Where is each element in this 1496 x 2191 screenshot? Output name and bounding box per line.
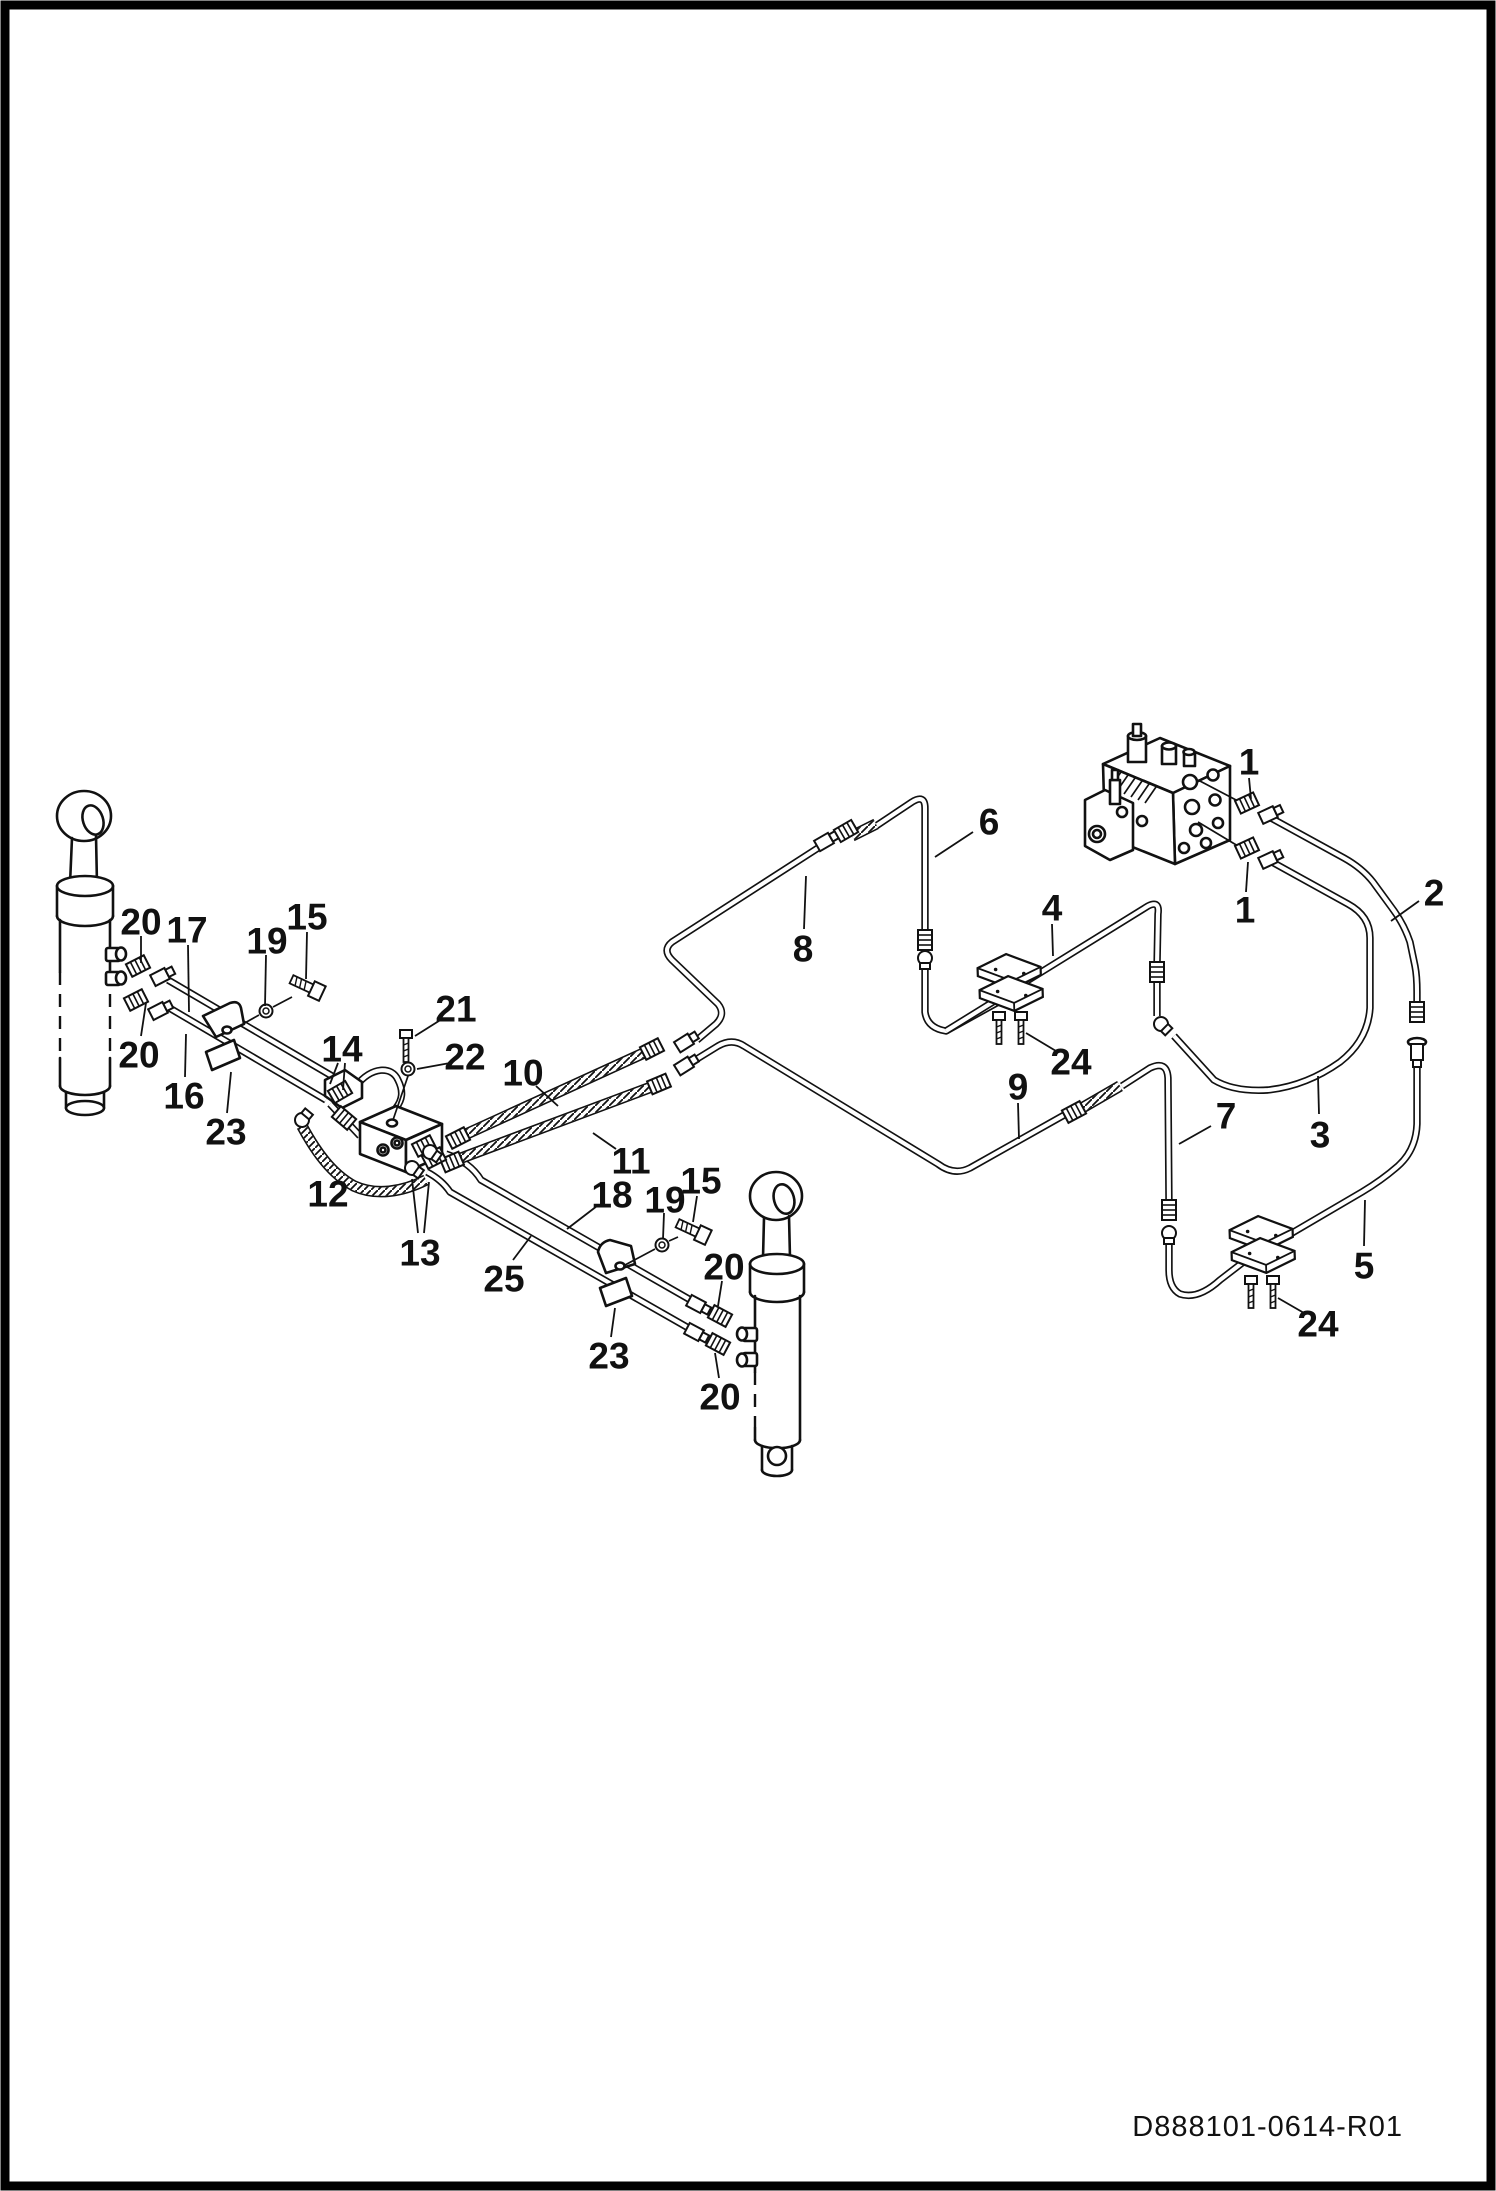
callout-leader xyxy=(1052,924,1053,956)
part-callout-19: 19 xyxy=(246,921,287,962)
callout-leader xyxy=(1318,1076,1319,1114)
part-callout-17: 17 xyxy=(166,910,207,951)
clamp-bolt-icon xyxy=(1245,1276,1257,1308)
part-callout-3: 3 xyxy=(1310,1115,1331,1156)
part-callout-4: 4 xyxy=(1042,888,1063,929)
callout-leader xyxy=(188,945,189,1012)
callout-leader xyxy=(424,1182,429,1233)
part-callout-23: 23 xyxy=(205,1112,246,1153)
part-callout-15: 15 xyxy=(680,1161,721,1202)
washer-icon xyxy=(656,1239,669,1252)
part-callout-19: 19 xyxy=(644,1180,685,1221)
callout-leader xyxy=(715,1353,719,1378)
part-callout-8: 8 xyxy=(793,929,814,970)
part-callout-14: 14 xyxy=(321,1029,363,1070)
part-callout-20: 20 xyxy=(120,902,161,943)
tee-fitting xyxy=(292,1070,362,1130)
part-callout-24: 24 xyxy=(1050,1042,1092,1083)
callout-leader xyxy=(265,955,266,1006)
callout-leader xyxy=(1364,1200,1365,1246)
part-callout-13: 13 xyxy=(399,1233,440,1274)
part-callout-20: 20 xyxy=(118,1035,159,1076)
part-callout-25: 25 xyxy=(483,1259,524,1300)
part-callout-23: 23 xyxy=(588,1336,629,1377)
washer-icon xyxy=(402,1063,415,1076)
washer-icon xyxy=(260,1005,273,1018)
callout-leader xyxy=(1179,1126,1211,1144)
part-callout-22: 22 xyxy=(444,1037,485,1078)
callout-leader xyxy=(185,1034,186,1077)
callout-leader xyxy=(804,876,806,929)
callout-leader xyxy=(141,1003,146,1036)
manual-page: 1123456789101112131415151617181919202020… xyxy=(0,0,1496,2191)
callout-leader xyxy=(306,932,307,979)
clamp-bolt-icon xyxy=(993,1012,1005,1044)
clamp-bolt-icon xyxy=(1015,1012,1027,1044)
tube-clamp-upper xyxy=(977,953,1043,1044)
callout-leader xyxy=(935,832,973,857)
part-callout-2: 2 xyxy=(1424,873,1445,914)
part-callout-16: 16 xyxy=(163,1076,204,1117)
part-callout-18: 18 xyxy=(591,1175,632,1216)
callout-leader xyxy=(227,1072,231,1113)
drawing-code: D888101-0614-R01 xyxy=(1132,2111,1403,2143)
part-callout-20: 20 xyxy=(699,1377,740,1418)
tube-clamp-lower xyxy=(1229,1215,1295,1308)
parts-diagram: 1123456789101112131415151617181919202020… xyxy=(0,0,1496,2191)
part-callout-12: 12 xyxy=(307,1174,348,1215)
part-callout-20: 20 xyxy=(703,1247,744,1288)
part-callout-7: 7 xyxy=(1216,1096,1237,1137)
control-valve xyxy=(1085,724,1238,864)
part-callout-6: 6 xyxy=(979,802,1000,843)
part-callout-1: 1 xyxy=(1239,742,1260,783)
hose-bracket-right xyxy=(598,1240,635,1306)
part-callout-9: 9 xyxy=(1008,1067,1029,1108)
clamp-bolt-icon xyxy=(1267,1276,1279,1308)
callout-leader xyxy=(513,1236,531,1260)
part-callout-24: 24 xyxy=(1297,1304,1339,1345)
part-callout-21: 21 xyxy=(435,989,476,1030)
callout-leader xyxy=(611,1308,615,1337)
manifold-bolt-icon xyxy=(400,1030,412,1062)
part-callout-1: 1 xyxy=(1235,890,1256,931)
left-hydraulic-cylinder xyxy=(57,791,126,1115)
callout-leader xyxy=(1246,862,1248,892)
bottom-hydraulic-cylinder xyxy=(737,1172,804,1476)
part-callout-5: 5 xyxy=(1354,1246,1375,1287)
callout-leader xyxy=(1018,1103,1019,1139)
part-callout-15: 15 xyxy=(286,897,327,938)
part-callout-10: 10 xyxy=(502,1053,543,1094)
